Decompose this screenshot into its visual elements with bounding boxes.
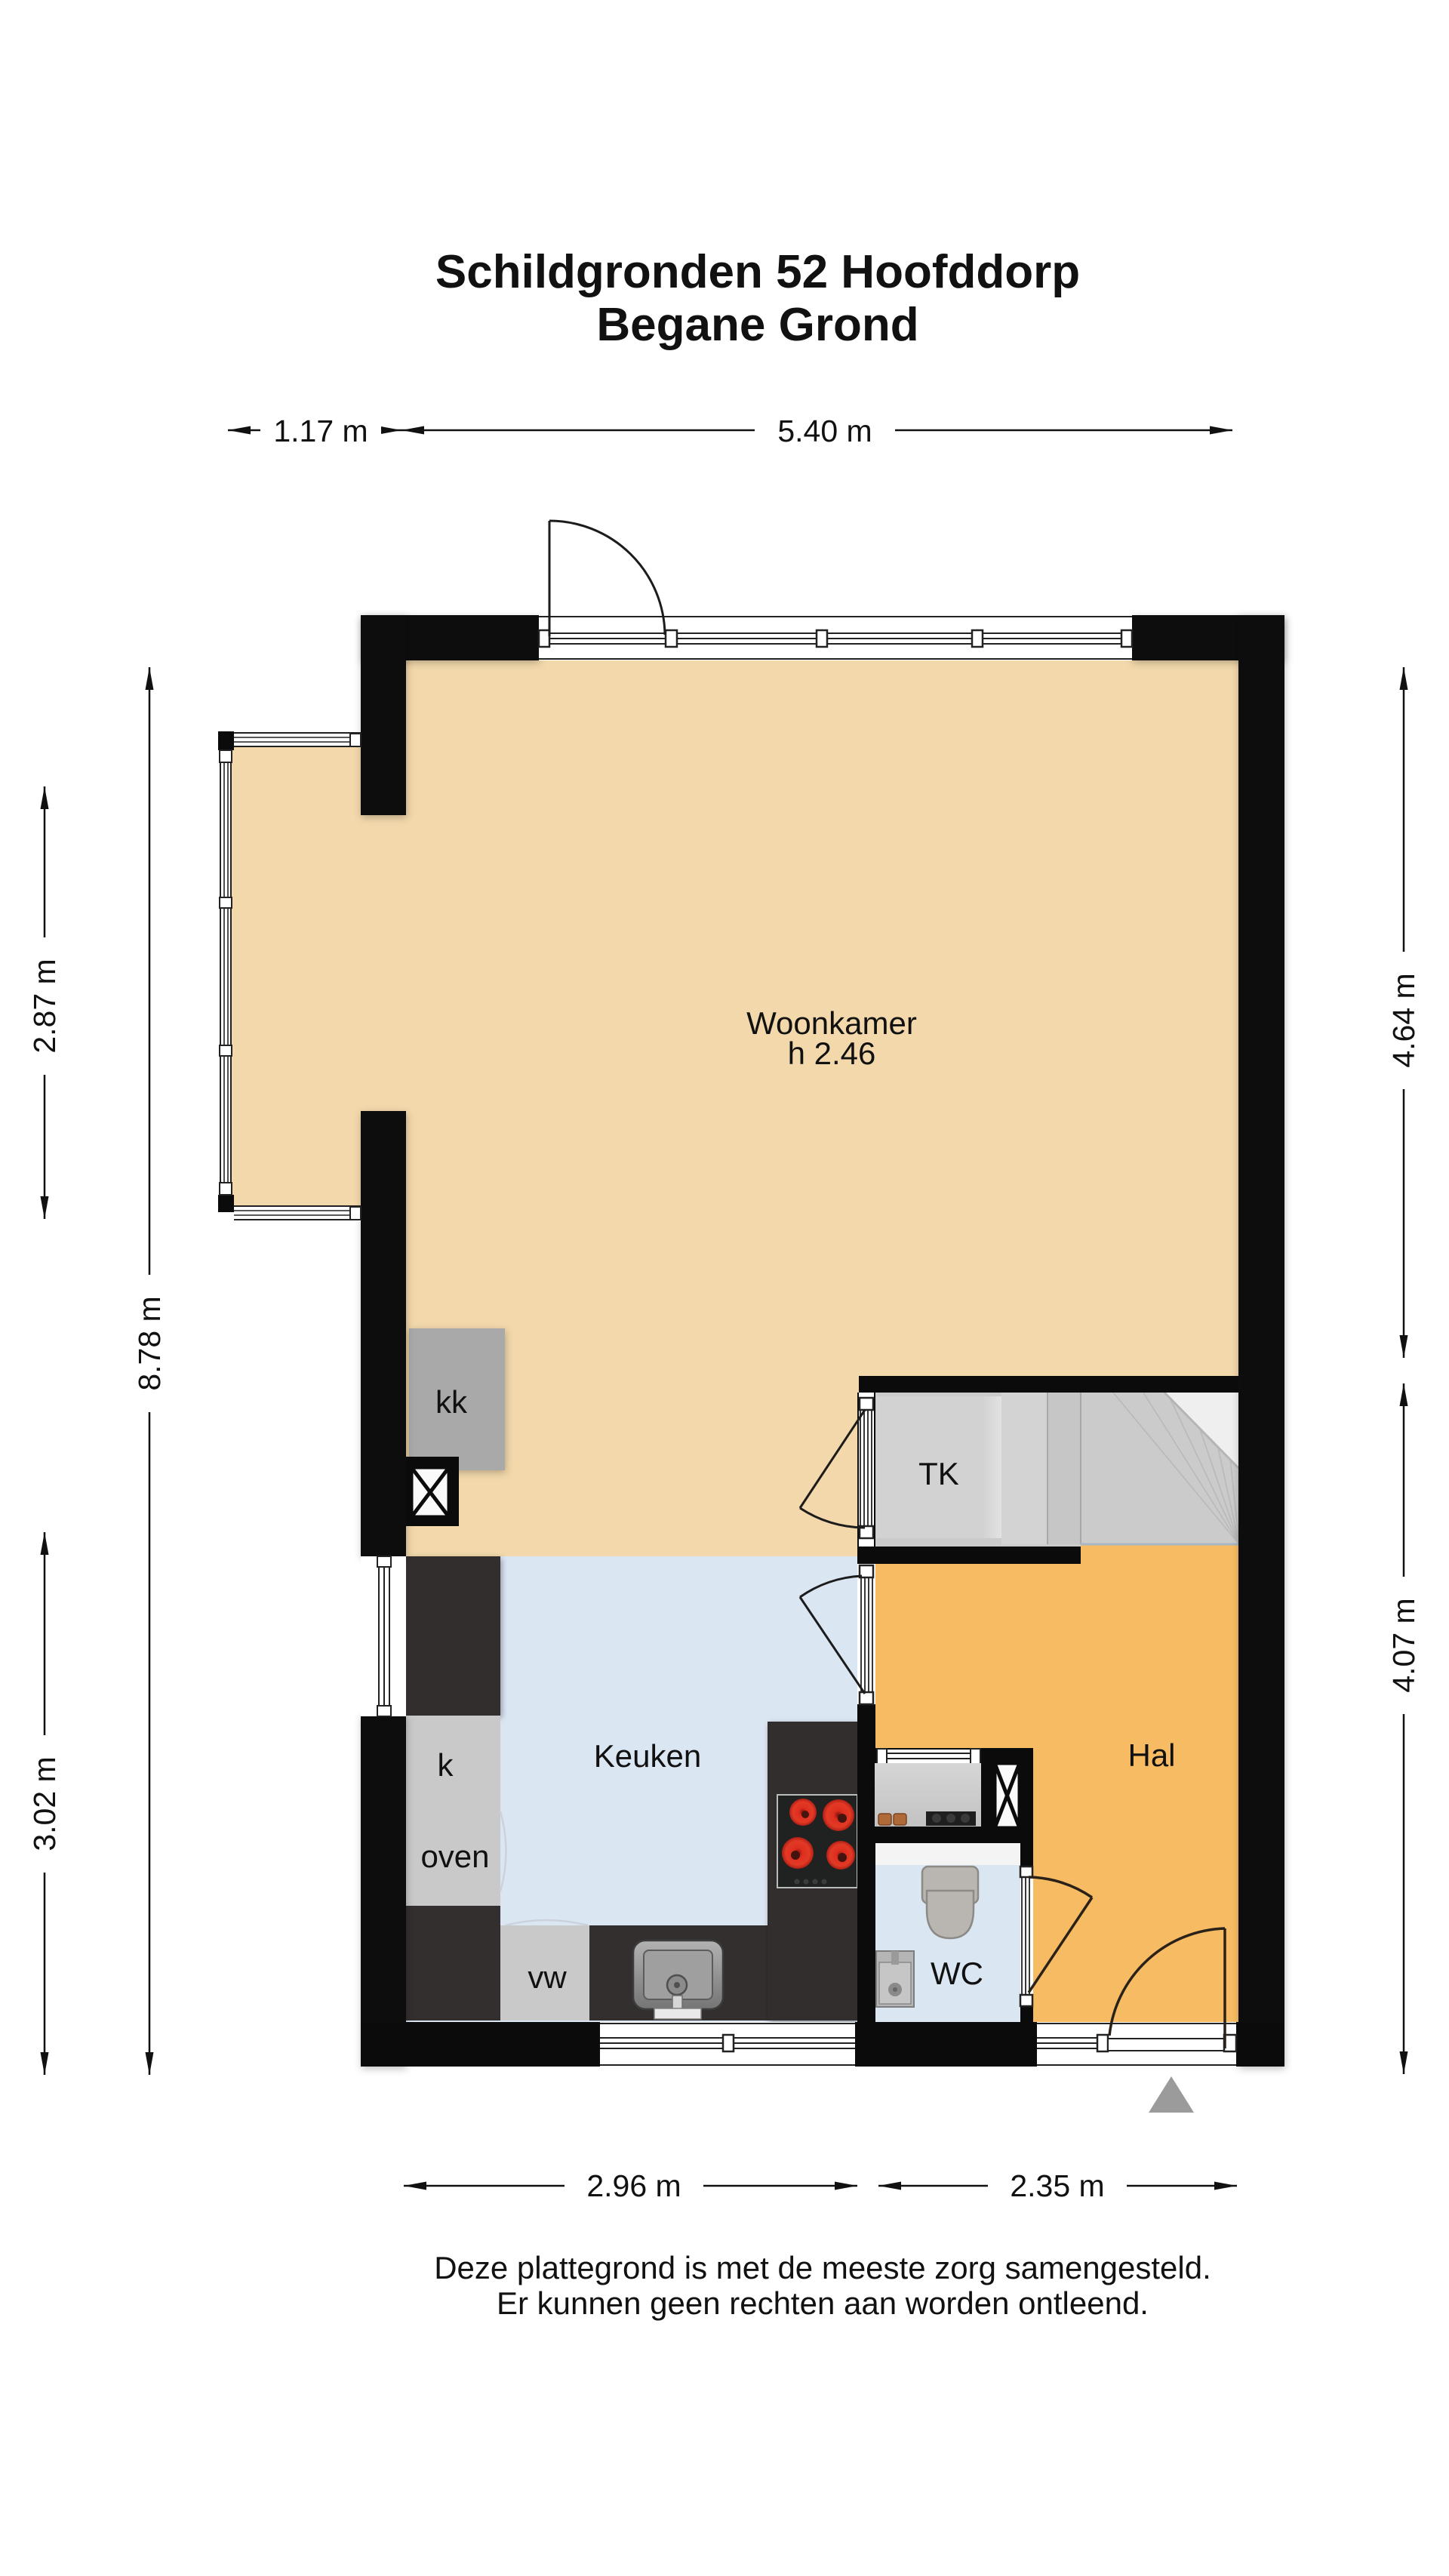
svg-text:2.35 m: 2.35 m (1010, 2168, 1104, 2203)
svg-text:4.07 m: 4.07 m (1386, 1598, 1421, 1692)
svg-text:Hal: Hal (1128, 1737, 1175, 1773)
svg-text:WC: WC (931, 1956, 983, 1991)
svg-text:2.87 m: 2.87 m (27, 959, 62, 1053)
svg-text:h 2.46: h 2.46 (788, 1036, 876, 1071)
svg-text:Schildgronden 52 Hoofddorp: Schildgronden 52 Hoofddorp (435, 246, 1080, 298)
svg-text:k: k (438, 1747, 454, 1783)
svg-text:Er kunnen geen rechten aan wor: Er kunnen geen rechten aan worden ontlee… (497, 2285, 1149, 2321)
svg-text:3.02 m: 3.02 m (27, 1756, 62, 1851)
svg-text:2.96 m: 2.96 m (586, 2168, 681, 2203)
svg-text:8.78 m: 8.78 m (132, 1296, 167, 1390)
svg-text:TK: TK (918, 1456, 959, 1491)
svg-text:kk: kk (435, 1384, 468, 1420)
svg-text:oven: oven (420, 1839, 489, 1874)
svg-text:Keuken: Keuken (594, 1738, 701, 1774)
svg-text:5.40 m: 5.40 m (777, 414, 872, 448)
svg-text:1.17 m: 1.17 m (273, 414, 368, 448)
svg-text:4.64 m: 4.64 m (1386, 973, 1421, 1067)
svg-text:Deze plattegrond is met de mee: Deze plattegrond is met de meeste zorg s… (434, 2250, 1211, 2285)
svg-text:vw: vw (528, 1959, 567, 1995)
svg-text:Begane Grond: Begane Grond (596, 299, 918, 351)
